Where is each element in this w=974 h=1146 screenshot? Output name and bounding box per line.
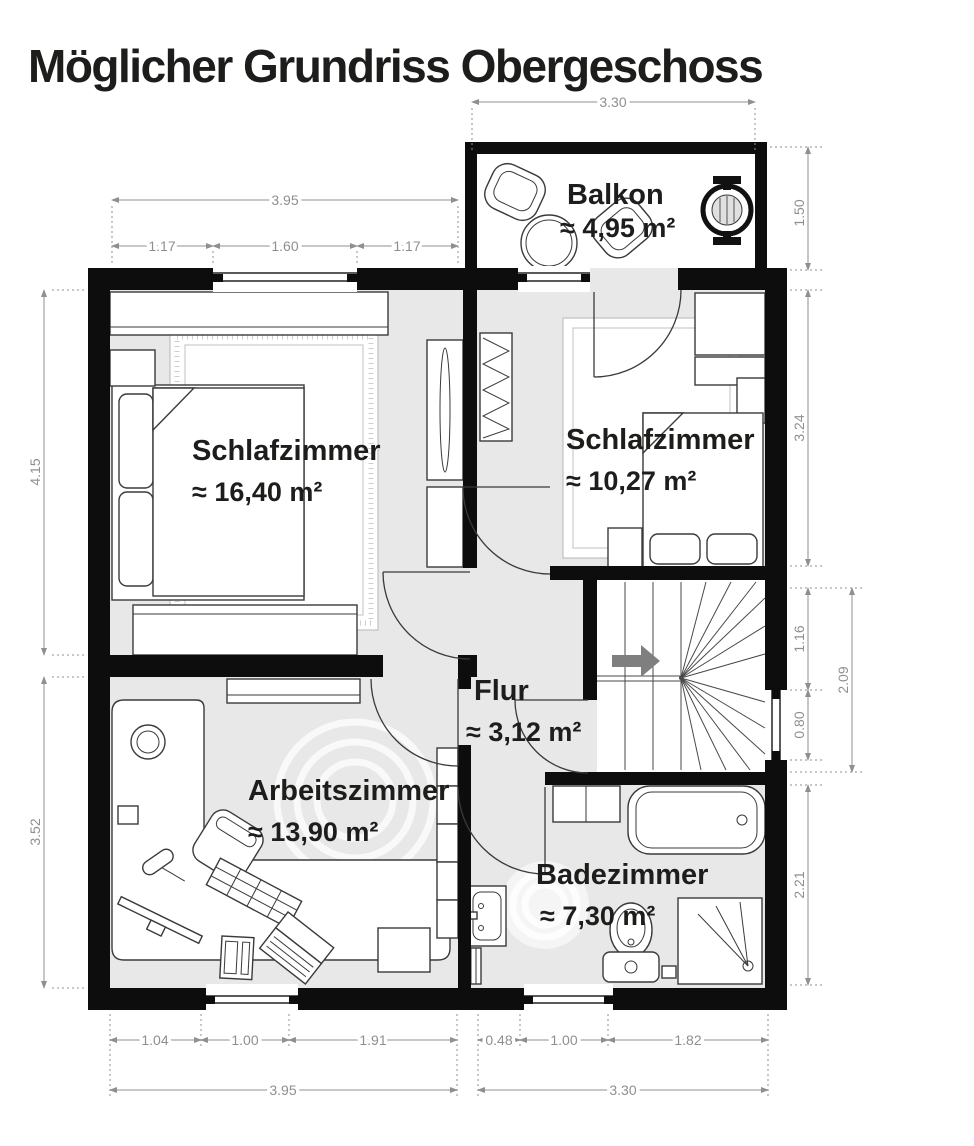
room-area-schlafzimmer2: ≈ 10,27 m² [566,466,696,496]
sink-icon [468,886,506,946]
room-area-badezimmer: ≈ 7,30 m² [540,901,655,931]
bathtub-icon [628,786,765,854]
bench-icon [608,528,642,568]
room-label-schlafzimmer2: Schlafzimmer [566,424,755,456]
dim-bedroom-right: 1.17 [393,238,420,254]
room-area-balkon: ≈ 4,95 m² [560,213,675,243]
window-icon [524,984,613,1012]
dim-study-height: 3.52 [27,818,43,845]
room-label-schlafzimmer1: Schlafzimmer [192,435,381,467]
stool-icon [131,725,165,759]
window-icon [518,266,590,292]
side-table-icon [378,928,430,972]
standing-mirror-icon [427,340,463,567]
wall-shelf-icon [227,679,360,703]
window-icon [213,266,357,292]
wall-box-icon [118,806,138,824]
dim-bedroom2-height: 3.24 [791,414,807,441]
room-label-balkon: Balkon [567,179,664,211]
floor-plan-page: Möglicher Grundriss Obergeschoss [0,0,974,1146]
dim-bedroom-window: 1.60 [271,238,298,254]
dim-bath-height: 2.21 [791,871,807,898]
room-area-schlafzimmer1: ≈ 16,40 m² [192,477,322,507]
balcony-parapet [465,154,477,268]
floor-plan-drawing: Möglicher Grundriss Obergeschoss [0,0,974,1146]
dim-bath-left: 0.48 [485,1032,512,1048]
dim-balcony-height: 1.50 [791,199,807,226]
dim-stair-total: 2.09 [835,666,851,693]
phone-icon [220,936,254,980]
dim-stair-window: 0.80 [791,711,807,738]
dim-bedroom1-height: 4.15 [27,458,43,485]
bath-cabinet-icon [553,786,620,822]
dim-right-total: 3.30 [609,1082,636,1098]
window-icon [765,690,787,760]
balcony-door-threshold [590,268,678,290]
closet-icon [110,292,388,335]
dim-study-window: 1.00 [231,1032,258,1048]
room-label-arbeitszimmer: Arbeitszimmer [248,775,449,807]
dim-study-right: 1.91 [359,1032,386,1048]
dresser-icon [133,605,357,655]
dim-bedroom-total: 3.95 [271,192,298,208]
dim-study-left: 1.04 [141,1032,168,1048]
dim-bedroom-left: 1.17 [148,238,175,254]
radiator-icon [480,333,512,441]
room-label-flur: Flur [474,675,529,707]
window-icon [206,984,298,1012]
room-area-flur: ≈ 3,12 m² [466,717,581,747]
dim-stair-upper: 1.16 [791,625,807,652]
balcony-parapet [755,154,767,268]
dim-balcony-width: 3.30 [599,94,626,110]
page-title: Möglicher Grundriss Obergeschoss [28,40,762,92]
nightstand-icon [110,350,155,386]
dim-bath-window: 1.00 [550,1032,577,1048]
dim-left-total: 3.95 [269,1082,296,1098]
dim-bath-right: 1.82 [674,1032,701,1048]
toilet-brush-icon [662,966,676,978]
shower-icon [678,898,762,984]
balcony-parapet [465,142,767,154]
room-area-arbeitszimmer: ≈ 13,90 m² [248,817,378,847]
room-label-badezimmer: Badezimmer [536,859,708,891]
